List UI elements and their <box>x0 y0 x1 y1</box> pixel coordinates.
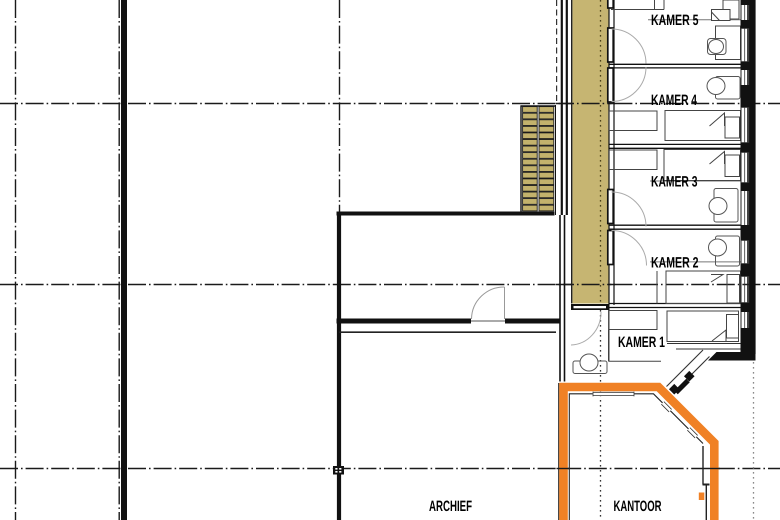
svg-text:KAMER 3: KAMER 3 <box>651 173 698 190</box>
svg-text:ARCHIEF: ARCHIEF <box>429 498 472 515</box>
svg-text:KAMER 2: KAMER 2 <box>651 254 699 271</box>
svg-text:KAMER 1: KAMER 1 <box>618 334 665 351</box>
svg-text:KAMER 5: KAMER 5 <box>651 12 699 29</box>
svg-text:KANTOOR: KANTOOR <box>614 498 662 515</box>
svg-text:KAMER 4: KAMER 4 <box>651 92 697 109</box>
